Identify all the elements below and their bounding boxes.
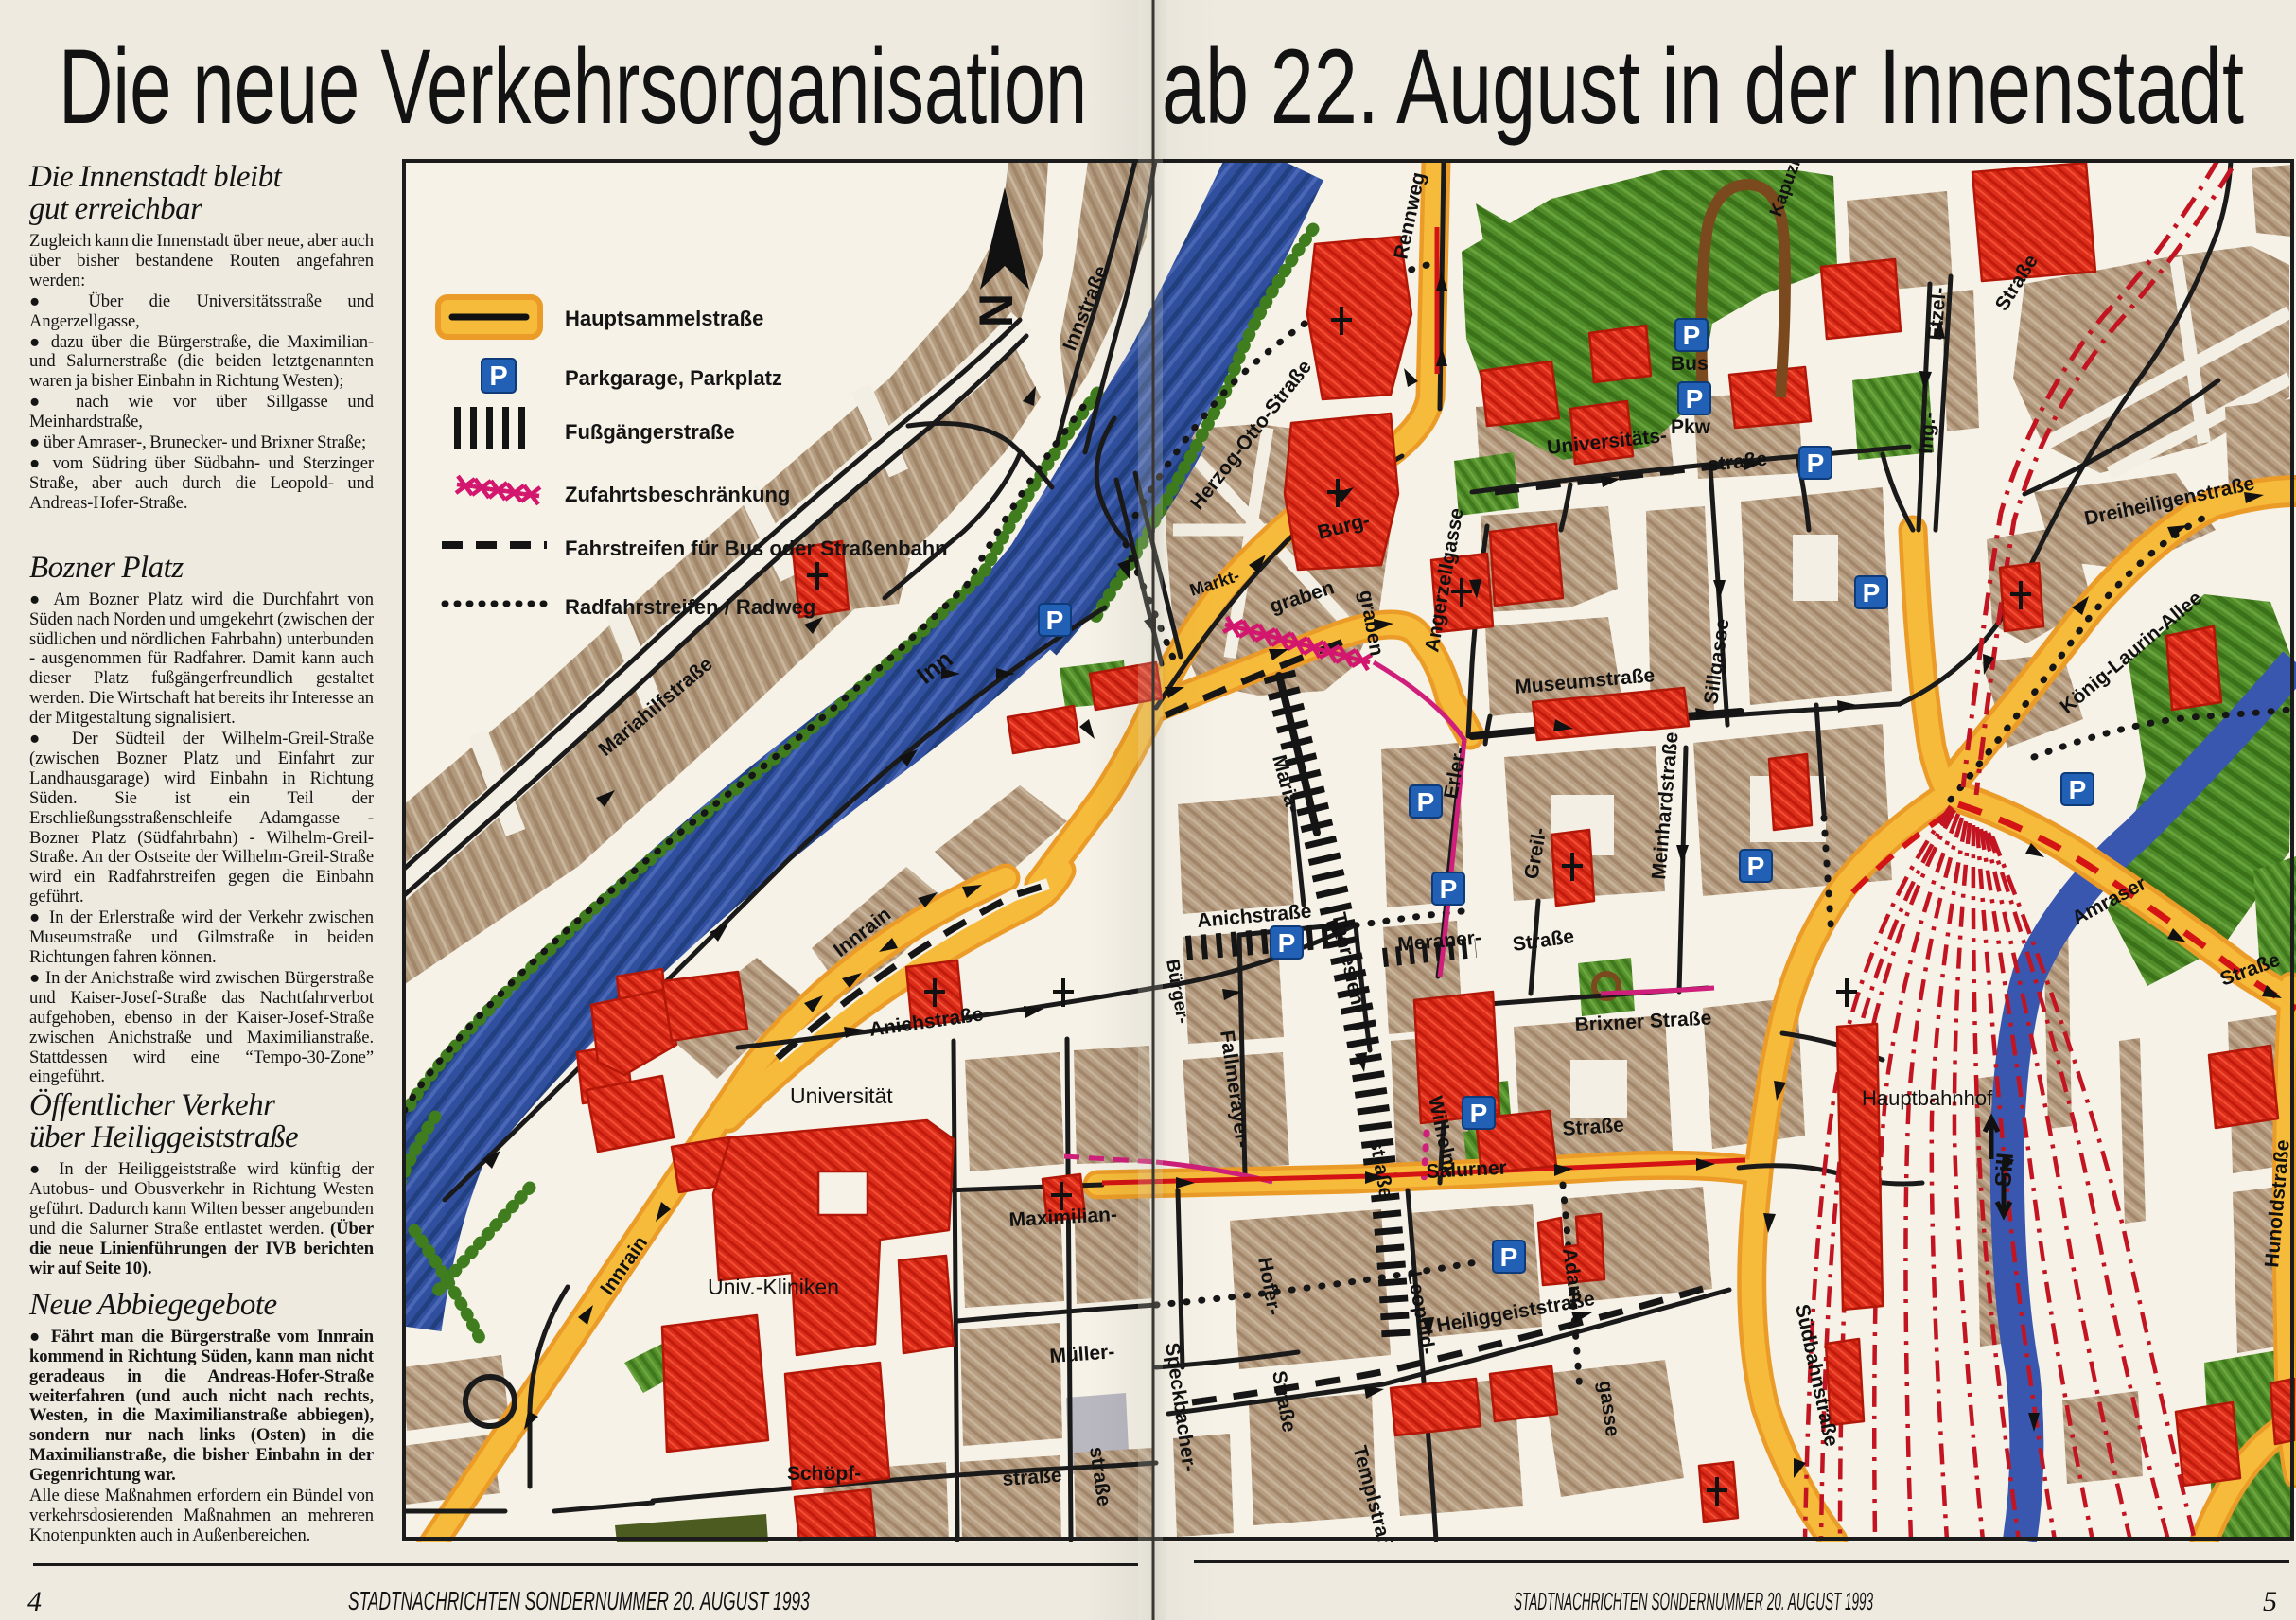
svg-text:Fahrstreifen für Bus oder Stra: Fahrstreifen für Bus oder Straßenbahn [565,537,948,560]
svg-text:ab 22. August in der Innenstad: ab 22. August in der Innenstadt [1162,28,2244,146]
svg-text:Die neue Verkehrsorganisation: Die neue Verkehrsorganisation [59,28,1087,146]
svg-text:STADTNACHRICHTEN SONDERNUMMER: STADTNACHRICHTEN SONDERNUMMER 20. AUGUST… [348,1586,810,1615]
svg-text:Radfahrstreifen / Radweg: Radfahrstreifen / Radweg [565,595,815,619]
svg-text:Straße: Straße [1562,1114,1625,1140]
svg-text:P: P [1863,578,1881,607]
svg-text:Schöpf-: Schöpf- [787,1463,861,1485]
svg-text:Müller-: Müller- [1049,1341,1115,1367]
svg-text:P: P [2069,775,2087,804]
svg-text:P: P [1470,1099,1488,1128]
svg-text:P: P [1807,449,1825,478]
svg-text:P: P [1747,852,1765,881]
svg-text:Parkgarage, Parkplatz: Parkgarage, Parkplatz [565,366,782,390]
svg-text:P: P [1500,1242,1518,1272]
svg-text:Hauptbahnhof: Hauptbahnhof [1862,1086,1993,1110]
svg-text:Universität: Universität [790,1083,893,1108]
svg-text:P: P [1278,928,1296,958]
svg-text:P: P [1046,606,1064,635]
svg-text:Hauptsammelstraße: Hauptsammelstraße [565,307,763,330]
svg-text:Bus: Bus [1671,353,1709,375]
svg-text:P: P [1686,384,1704,414]
svg-text:Univ.-Kliniken: Univ.-Kliniken [708,1275,839,1299]
svg-text:P: P [1440,874,1458,904]
svg-text:straße: straße [1002,1465,1062,1490]
svg-text:Pkw: Pkw [1671,416,1711,438]
svg-text:P: P [1417,787,1435,817]
svg-text:P: P [1683,321,1701,350]
svg-text:Etzel-: Etzel- [1924,287,1951,342]
svg-text:Fußgängerstraße: Fußgängerstraße [565,420,735,444]
svg-text:Ing.-: Ing.- [1915,411,1940,454]
svg-text:P: P [489,361,507,392]
svg-text:N: N [970,293,1023,327]
svg-text:Zufahrtsbeschränkung: Zufahrtsbeschränkung [565,483,790,506]
svg-text:STADTNACHRICHTEN SONDERNUMMER: STADTNACHRICHTEN SONDERNUMMER 20. AUGUST… [1514,1588,1873,1615]
svg-text:Salurner: Salurner [1426,1157,1507,1183]
